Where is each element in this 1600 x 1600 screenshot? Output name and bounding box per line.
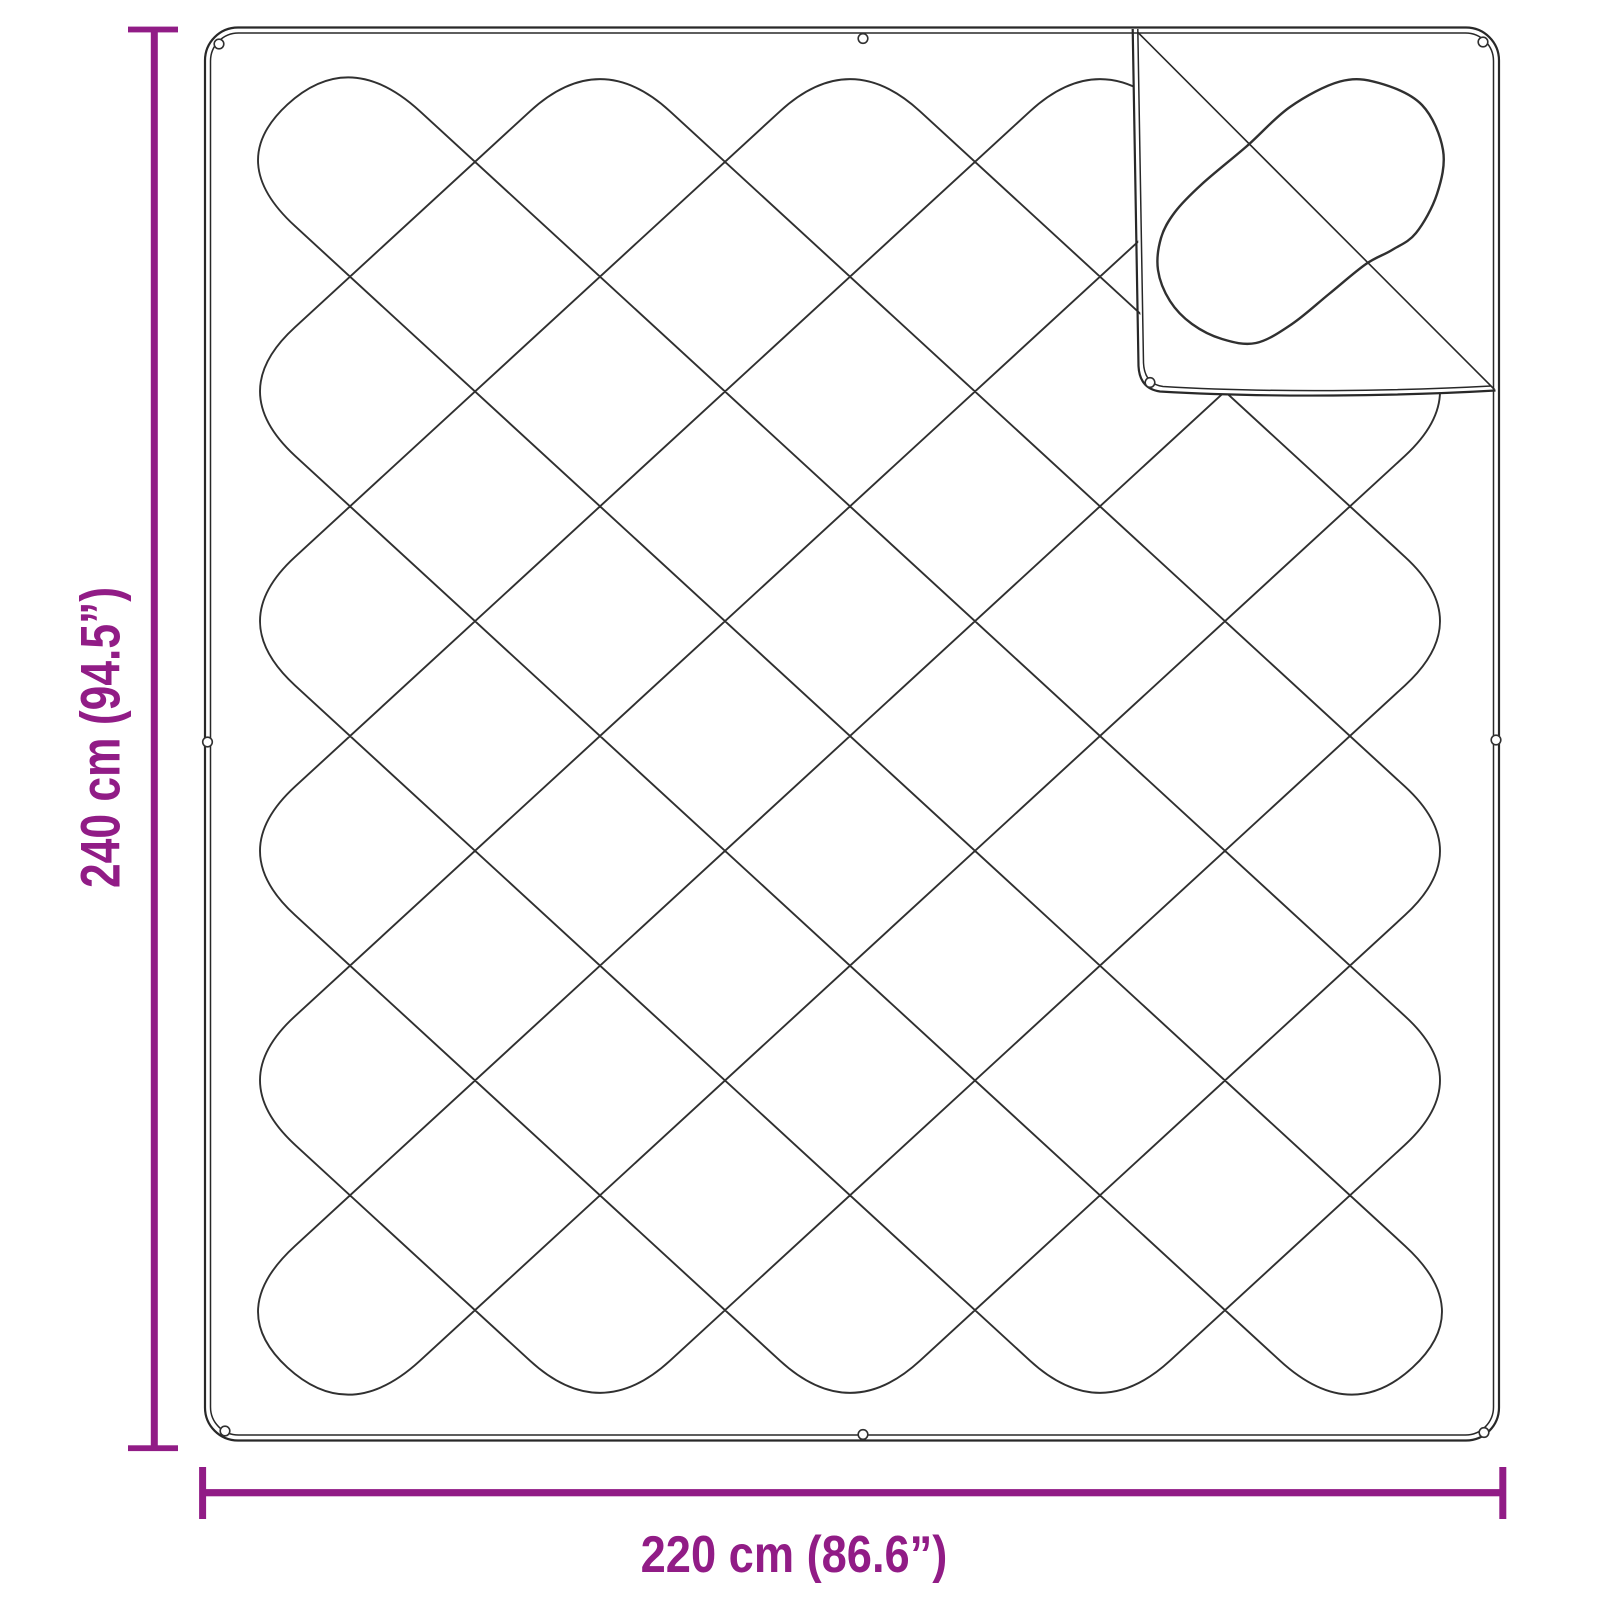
svg-text:240 cm (94.5”): 240 cm (94.5”)	[70, 587, 132, 888]
svg-text:220 cm (86.6”): 220 cm (86.6”)	[641, 1526, 948, 1584]
